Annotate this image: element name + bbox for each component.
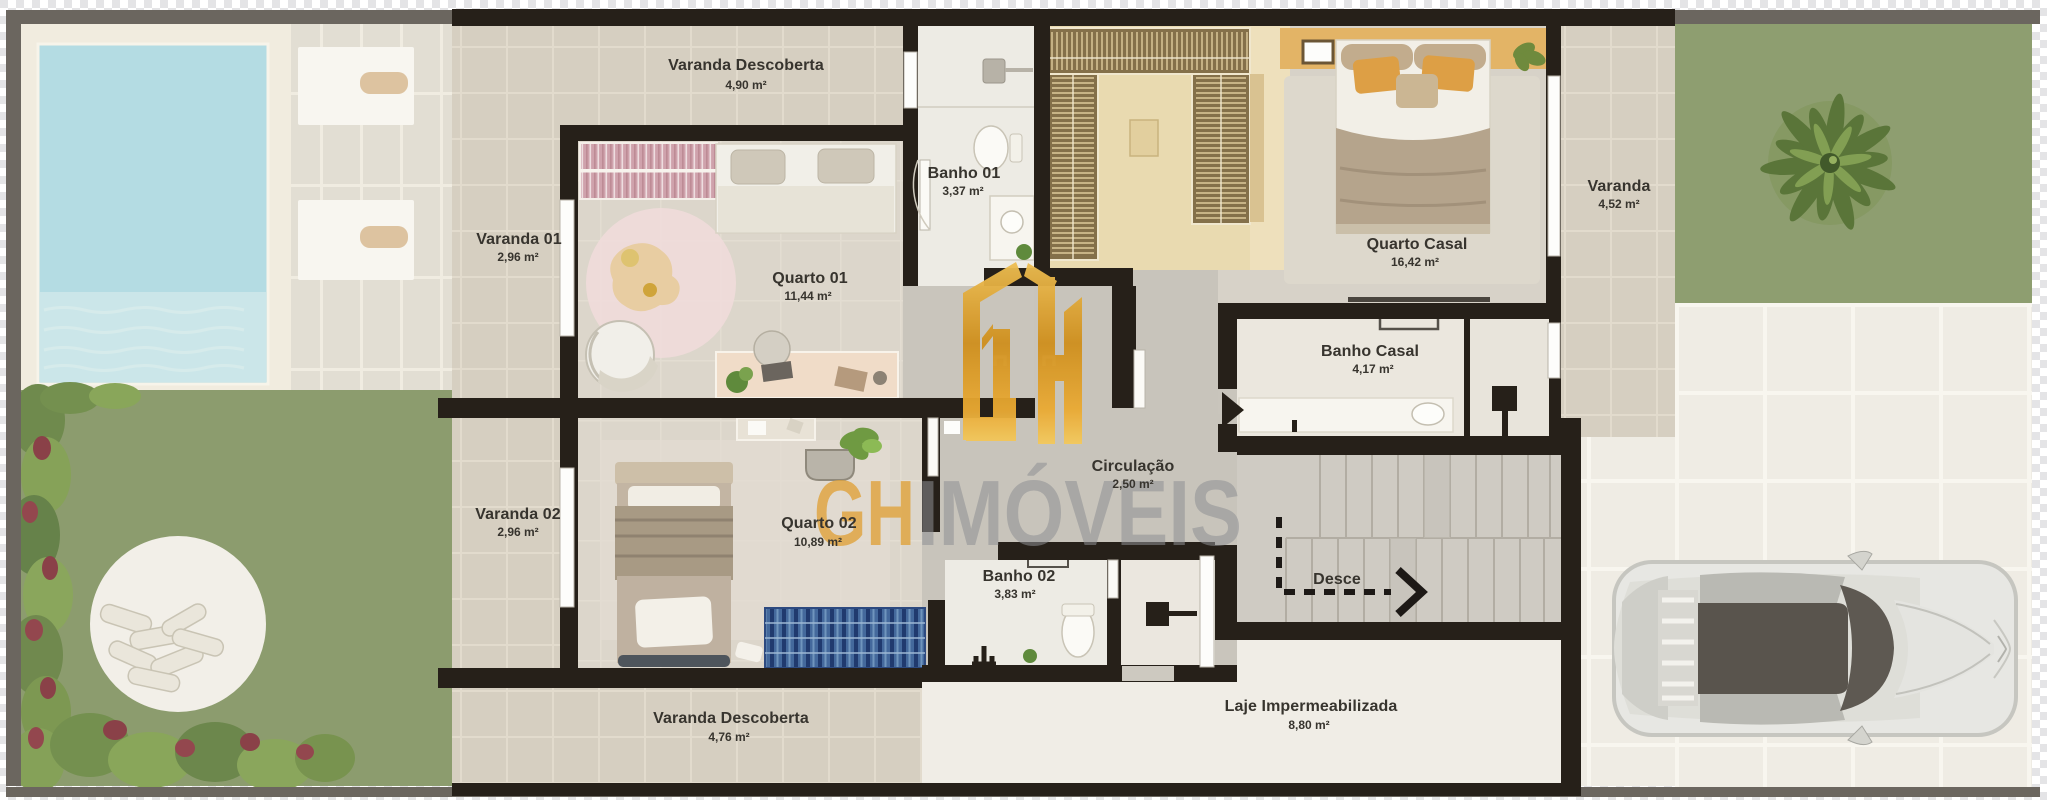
svg-text:2,50 m²: 2,50 m²	[1112, 477, 1153, 491]
svg-text:11,44 m²: 11,44 m²	[784, 289, 831, 303]
svg-text:Varanda 02: Varanda 02	[475, 506, 561, 523]
svg-text:3,37 m²: 3,37 m²	[942, 184, 983, 198]
svg-text:10,89 m²: 10,89 m²	[794, 535, 842, 549]
svg-text:Varanda Descoberta: Varanda Descoberta	[653, 710, 809, 727]
svg-text:Varanda: Varanda	[1588, 178, 1651, 195]
svg-text:3,83 m²: 3,83 m²	[994, 587, 1035, 601]
svg-text:Laje Impermeabilizada: Laje Impermeabilizada	[1225, 698, 1398, 715]
svg-text:Quarto 01: Quarto 01	[772, 270, 848, 287]
svg-text:Banho 01: Banho 01	[928, 165, 1001, 182]
svg-text:Banho 02: Banho 02	[983, 568, 1056, 585]
svg-text:Banho Casal: Banho Casal	[1321, 343, 1419, 360]
svg-text:8,80 m²: 8,80 m²	[1288, 718, 1329, 732]
svg-text:Varanda Descoberta: Varanda Descoberta	[668, 57, 824, 74]
svg-text:Varanda 01: Varanda 01	[476, 231, 562, 248]
svg-text:4,52 m²: 4,52 m²	[1598, 197, 1639, 211]
svg-text:Circulação: Circulação	[1092, 458, 1175, 475]
svg-text:Quarto 02: Quarto 02	[781, 515, 857, 532]
svg-text:GH: GH	[814, 461, 915, 565]
svg-text:Desce: Desce	[1313, 571, 1361, 588]
svg-text:4,90 m²: 4,90 m²	[725, 78, 766, 92]
svg-text:IMÓVEIS: IMÓVEIS	[917, 461, 1242, 565]
svg-text:4,76 m²: 4,76 m²	[708, 730, 749, 744]
svg-text:4,17 m²: 4,17 m²	[1352, 362, 1393, 376]
svg-text:2,96 m²: 2,96 m²	[497, 250, 538, 264]
svg-text:Quarto Casal: Quarto Casal	[1367, 236, 1468, 253]
svg-text:2,96 m²: 2,96 m²	[497, 525, 538, 539]
svg-text:16,42 m²: 16,42 m²	[1391, 255, 1439, 269]
